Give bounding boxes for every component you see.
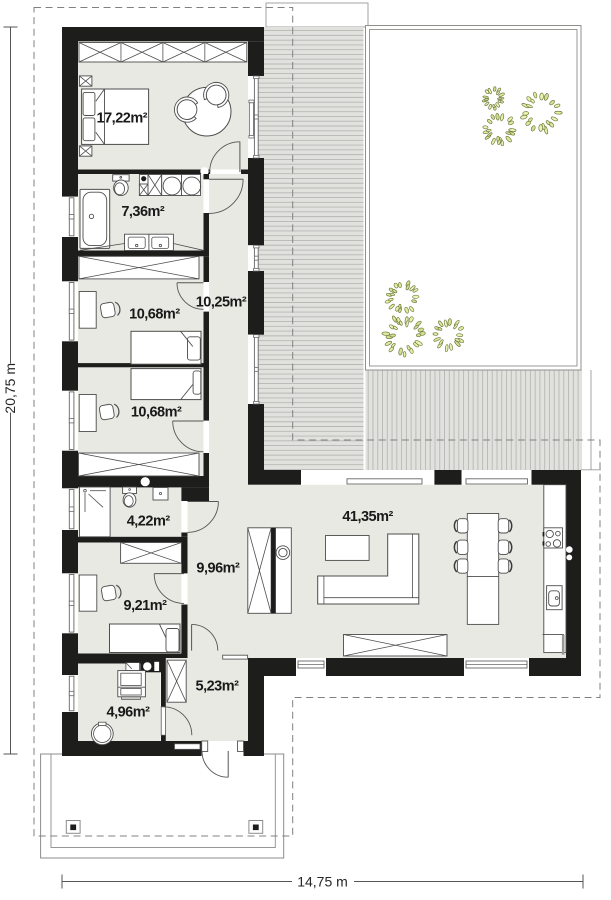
svg-text:10,68m²: 10,68m²	[131, 405, 182, 421]
svg-text:17,22m²: 17,22m²	[97, 110, 148, 126]
svg-text:41,35m²: 41,35m²	[342, 509, 393, 525]
svg-text:10,68m²: 10,68m²	[129, 307, 180, 323]
svg-text:14,75 m: 14,75 m	[297, 873, 348, 889]
svg-text:4,96m²: 4,96m²	[107, 705, 151, 721]
svg-text:10,25m²: 10,25m²	[196, 294, 247, 310]
svg-text:5,23m²: 5,23m²	[196, 678, 240, 694]
svg-text:7,36m²: 7,36m²	[121, 204, 165, 220]
svg-text:4,22m²: 4,22m²	[127, 514, 171, 530]
svg-text:20,75 m: 20,75 m	[2, 363, 18, 414]
svg-text:9,96m²: 9,96m²	[196, 560, 240, 576]
svg-text:9,21m²: 9,21m²	[124, 598, 168, 614]
